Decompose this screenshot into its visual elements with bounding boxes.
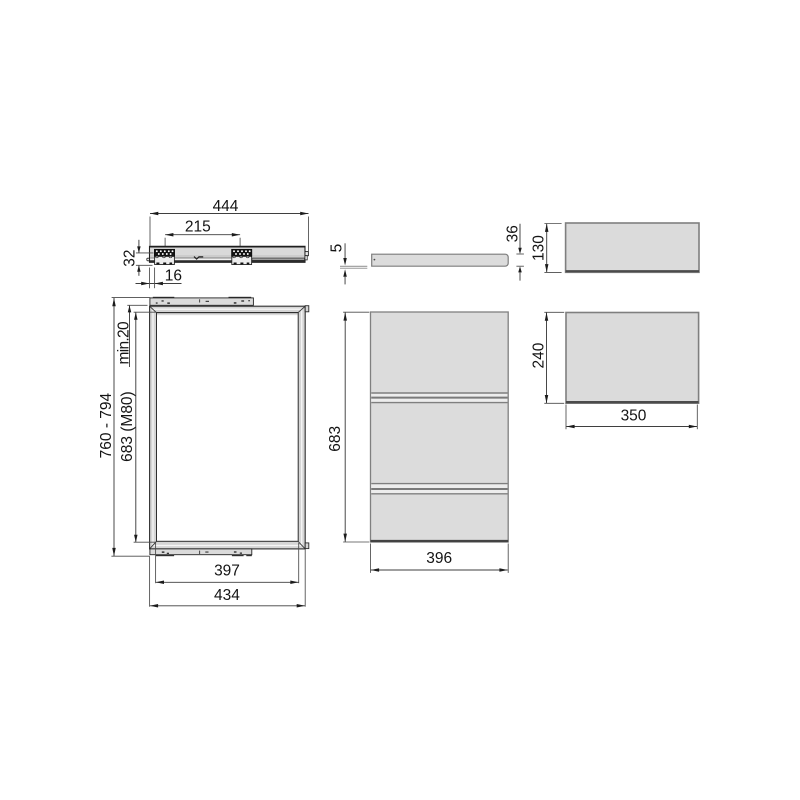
svg-text:36: 36 [504, 225, 521, 242]
svg-text:min.20: min.20 [116, 321, 133, 364]
svg-text:16: 16 [165, 267, 182, 284]
svg-text:397: 397 [214, 562, 240, 579]
svg-text:760 - 794: 760 - 794 [98, 392, 115, 458]
svg-text:444: 444 [213, 198, 239, 215]
svg-text:683: 683 [327, 426, 344, 452]
svg-text:683 (M80): 683 (M80) [119, 391, 136, 462]
svg-text:240: 240 [531, 342, 548, 368]
svg-text:32: 32 [122, 249, 139, 266]
svg-text:350: 350 [621, 408, 647, 425]
svg-text:130: 130 [531, 235, 548, 261]
svg-text:396: 396 [426, 550, 452, 567]
svg-text:5: 5 [329, 244, 346, 253]
svg-text:434: 434 [214, 587, 240, 604]
svg-text:215: 215 [185, 219, 211, 236]
